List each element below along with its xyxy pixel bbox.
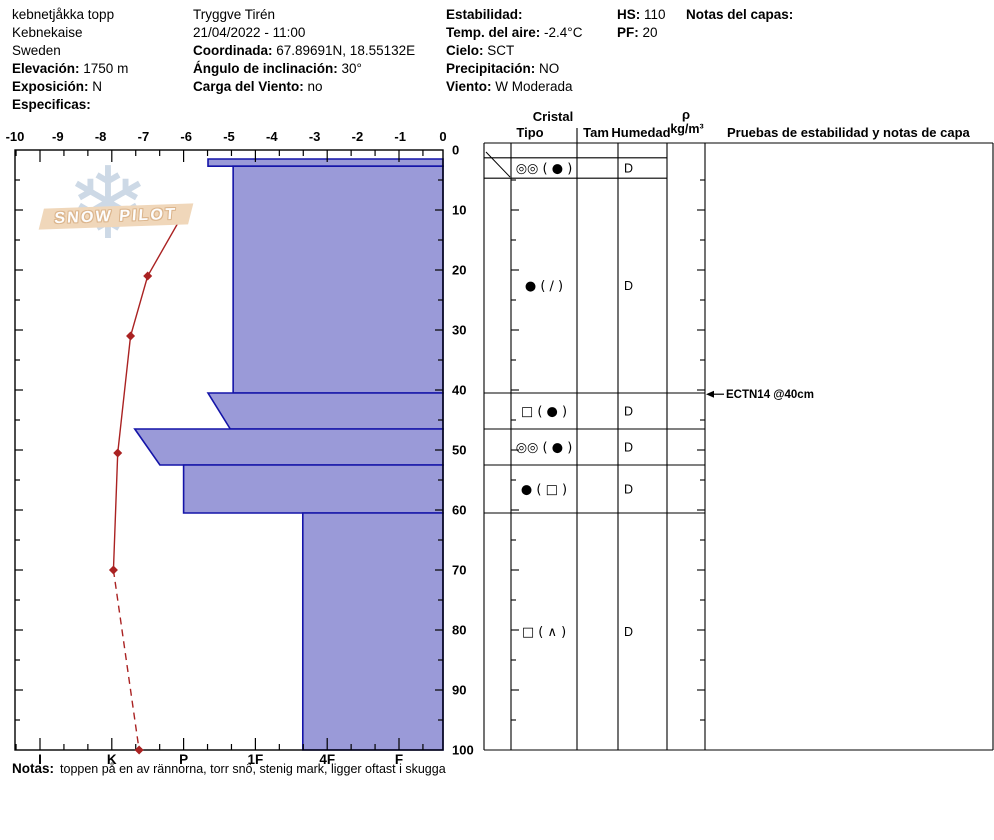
wetness-value: D	[624, 162, 633, 176]
temp-axis-tick-label: -3	[309, 129, 321, 144]
temp-axis-tick-label: -10	[6, 129, 25, 144]
hardness-layer-bar	[233, 166, 443, 393]
pit-notes-label: Notas:	[12, 761, 54, 776]
temp-point-marker	[113, 449, 122, 458]
hardness-layer-bar	[184, 465, 443, 513]
temp-point-marker	[126, 332, 135, 341]
snowpilot-profile-page: kebnetjåkka toppKebnekaiseSwedenElevació…	[0, 0, 994, 840]
depth-axis-tick-label: 90	[452, 683, 466, 698]
hardness-layer-bar	[303, 513, 443, 750]
hardness-layer-bar	[208, 159, 443, 166]
col-header-cristal: Cristal	[533, 109, 573, 124]
temp-axis-tick-label: -5	[223, 129, 235, 144]
col-header-density-rho: ρ	[682, 107, 690, 122]
grain-type-symbol: ● ( □ )	[521, 483, 567, 498]
depth-axis-tick-label: 40	[452, 383, 466, 398]
depth-axis-tick-label: 0	[452, 143, 459, 158]
temp-point-marker	[143, 272, 152, 281]
depth-axis-tick-label: 10	[452, 203, 466, 218]
temp-point-marker	[109, 566, 118, 575]
snow-profile-chart: -10-9-8-7-6-5-4-3-2-10IKP1F4FF0102030405…	[0, 0, 994, 840]
col-header-humedad: Humedad	[611, 125, 670, 140]
pit-notes: Notas:toppen på en av rännorna, torr snö…	[12, 761, 446, 776]
depth-axis-tick-label: 50	[452, 443, 466, 458]
grain-type-symbol: ◎◎ ( ● )	[516, 162, 573, 177]
pit-notes-text: toppen på en av rännorna, torr snö, sten…	[60, 762, 446, 776]
table-depth-link-line	[486, 152, 510, 177]
temp-axis-tick-label: -6	[180, 129, 192, 144]
temperature-line	[113, 216, 181, 570]
temp-axis-tick-label: 0	[439, 129, 446, 144]
col-header-tam: Tam	[583, 125, 609, 140]
depth-axis-tick-label: 30	[452, 323, 466, 338]
wetness-value: D	[624, 405, 633, 419]
col-header-tipo: Tipo	[516, 125, 543, 140]
wetness-value: D	[624, 441, 633, 455]
temp-axis-tick-label: -1	[394, 129, 406, 144]
depth-axis-tick-label: 20	[452, 263, 466, 278]
depth-axis-tick-label: 60	[452, 503, 466, 518]
grain-type-symbol: ◎◎ ( ● )	[516, 441, 573, 456]
temp-axis-tick-label: -4	[266, 129, 278, 144]
depth-axis-tick-label: 70	[452, 563, 466, 578]
temperature-line-dashed	[113, 570, 139, 750]
depth-axis-tick-label: 80	[452, 623, 466, 638]
grain-type-symbol: □ ( ● )	[521, 405, 567, 420]
wetness-value: D	[624, 483, 633, 497]
hardness-layer-bar	[208, 393, 443, 429]
temp-axis-tick-label: -8	[95, 129, 107, 144]
temp-axis-tick-label: -2	[352, 129, 364, 144]
hardness-layer-bar	[135, 429, 443, 465]
col-header-tests: Pruebas de estabilidad y notas de capa	[727, 125, 971, 140]
temp-axis-tick-label: -7	[138, 129, 150, 144]
test-arrow-head	[706, 391, 714, 398]
col-header-density-unit: kg/m³	[670, 122, 703, 136]
depth-axis-tick-label: 100	[452, 743, 474, 758]
grain-type-symbol: □ ( ∧ )	[522, 625, 566, 640]
wetness-value: D	[624, 625, 633, 639]
temp-axis-tick-label: -9	[52, 129, 64, 144]
wetness-value: D	[624, 279, 633, 293]
temp-point-marker	[177, 212, 186, 221]
grain-type-symbol: ● ( ∕ )	[525, 279, 563, 294]
test-result-label: ECTN14 @40cm	[726, 389, 814, 401]
